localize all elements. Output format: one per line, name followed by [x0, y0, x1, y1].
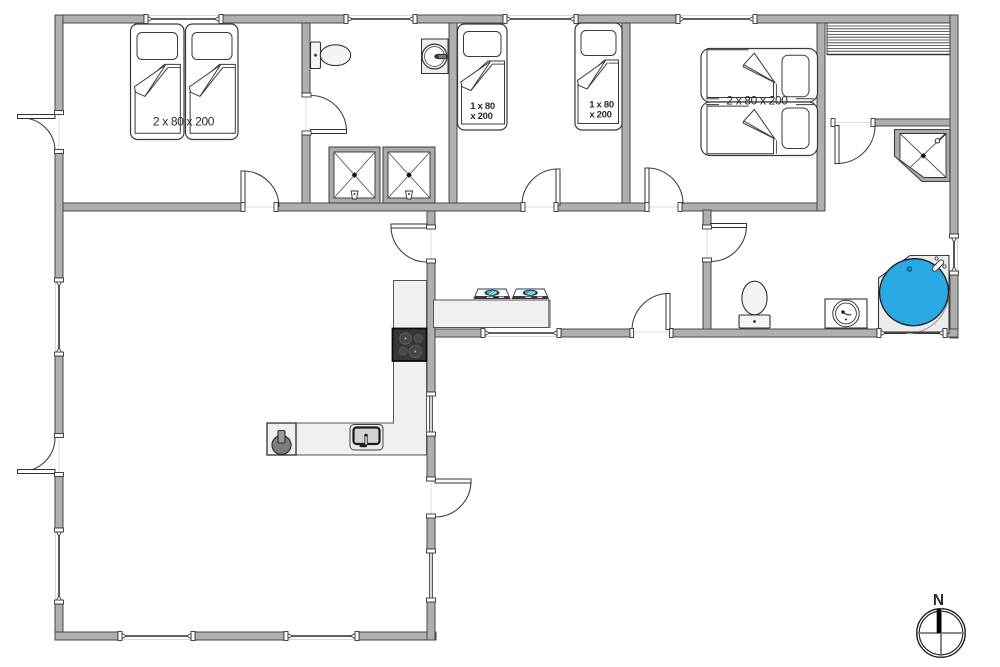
svg-text:N: N	[933, 592, 944, 609]
svg-text:x 200: x 200	[470, 111, 492, 122]
svg-text:2 x 80 x 200: 2 x 80 x 200	[153, 115, 215, 129]
svg-text:2 x 80 x 200: 2 x 80 x 200	[726, 94, 788, 108]
svg-text:x 200: x 200	[589, 110, 611, 121]
